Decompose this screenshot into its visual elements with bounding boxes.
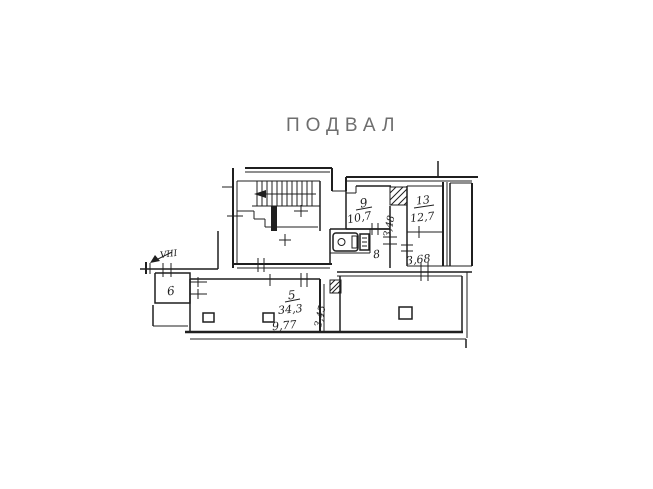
scanned-floor-plan-page: ПОДВАЛ bbox=[0, 0, 653, 489]
room-8-number: 8 bbox=[372, 248, 381, 262]
bathtub-drain-icon bbox=[338, 239, 345, 246]
stairwell-marker: VIII bbox=[150, 249, 178, 263]
room-5-depth-dim: 3,45 bbox=[313, 305, 328, 329]
column bbox=[203, 313, 214, 322]
outer-walls bbox=[185, 161, 478, 348]
column bbox=[399, 307, 412, 319]
stair-arrow-head bbox=[254, 190, 266, 198]
room-368-area: 3,68 bbox=[405, 252, 431, 267]
stairwell-label: VIII bbox=[160, 249, 179, 261]
room-5-width-dim: 9,77 bbox=[272, 318, 298, 333]
staircase bbox=[237, 181, 320, 231]
room-5-area: 34,3 bbox=[278, 302, 304, 317]
floor-plan-drawing: VIII 6 5 34,3 9,77 3,45 8 9 10,7 3,48 13… bbox=[0, 0, 653, 489]
vent-shaft bbox=[390, 187, 407, 205]
room-13-area: 12,7 bbox=[409, 210, 435, 225]
room-6-number: 6 bbox=[166, 284, 176, 299]
bathroom-fixtures bbox=[333, 233, 369, 251]
columns bbox=[203, 307, 412, 322]
room-9-area: 10,7 bbox=[346, 209, 372, 226]
room-9-depth-dim: 3,48 bbox=[382, 215, 397, 239]
